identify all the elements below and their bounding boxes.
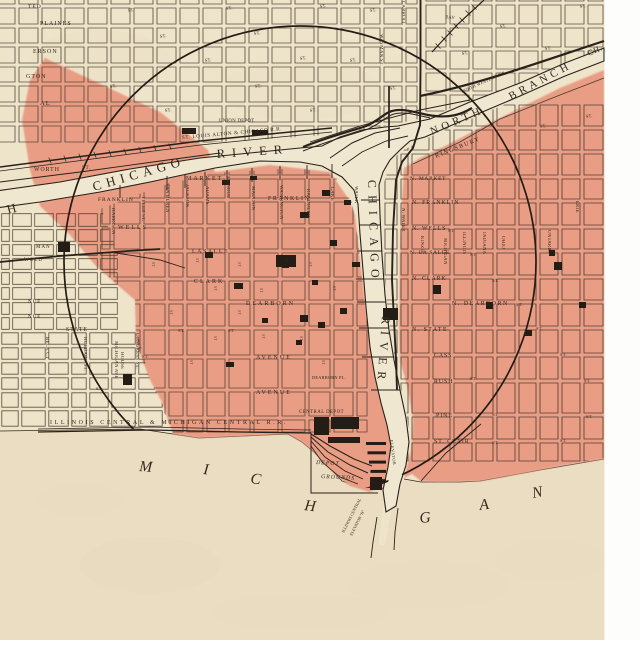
svg-text:JACKSON: JACKSON <box>184 184 189 208</box>
svg-text:ILLINOIS CENTRAL & MICHIGAN CE: ILLINOIS CENTRAL & MICHIGAN CENTRAL R.R. <box>50 420 288 426</box>
svg-text:ST.: ST. <box>389 85 396 91</box>
svg-text:UNION DEPOT.: UNION DEPOT. <box>219 119 256 124</box>
svg-text:ST: ST <box>321 360 325 365</box>
svg-text:WORTH: WORTH <box>34 167 60 173</box>
svg-text:ST.: ST. <box>228 328 235 333</box>
svg-text:ST.: ST. <box>536 326 543 331</box>
svg-text:ST.: ST. <box>585 113 592 119</box>
svg-text:ST: ST <box>213 336 217 341</box>
svg-text:N. STATE: N. STATE <box>412 327 448 333</box>
svg-text:ST.: ST. <box>253 30 260 36</box>
svg-text:WELLS: WELLS <box>118 225 148 231</box>
svg-text:ST: ST <box>151 262 155 267</box>
svg-text:ST.: ST. <box>349 57 356 63</box>
svg-text:N. FRANKLIN: N. FRANKLIN <box>412 200 459 206</box>
svg-text:ONTARIO: ONTARIO <box>546 230 551 253</box>
svg-text:N. CLARK: N. CLARK <box>412 276 447 282</box>
svg-text:KINZIE: KINZIE <box>419 236 424 254</box>
svg-text:N. WATER: N. WATER <box>400 208 405 232</box>
svg-text:MICHIGAN AVE: MICHIGAN AVE <box>113 341 118 379</box>
svg-text:MONROE: MONROE <box>225 176 230 198</box>
svg-text:LASALLE: LASALLE <box>192 249 229 255</box>
svg-text:CARROLL: CARROLL <box>400 1 405 25</box>
svg-text:ST: ST <box>332 286 336 291</box>
svg-text:INDIANA: INDIANA <box>481 232 486 255</box>
svg-text:ST.: ST. <box>319 3 326 9</box>
svg-text:HUBBARD ST.: HUBBARD ST. <box>82 337 87 371</box>
svg-text:ERIE: ERIE <box>574 201 579 213</box>
svg-text:CENTRAL DEPOT: CENTRAL DEPOT <box>299 410 344 415</box>
svg-text:MICHIGAN: MICHIGAN <box>442 238 447 265</box>
svg-text:ST.: ST. <box>309 107 316 113</box>
svg-text:ST.: ST. <box>560 352 567 357</box>
svg-text:CONGRESS ST.: CONGRESS ST. <box>134 333 139 369</box>
svg-text:ST: ST <box>299 336 303 341</box>
svg-text:WASHINGTON: WASHINGTON <box>278 185 283 220</box>
svg-text:WOLD: WOLD <box>24 258 43 263</box>
svg-text:ST: ST <box>169 310 173 315</box>
svg-text:ST.: ST. <box>96 386 103 391</box>
svg-text:ST: ST <box>237 310 241 315</box>
svg-text:ST.: ST. <box>225 5 232 11</box>
svg-text:ST. CLAIR: ST. CLAIR <box>434 439 470 445</box>
svg-text:ST.: ST. <box>560 438 567 443</box>
svg-text:WATER: WATER <box>353 186 358 204</box>
svg-text:ST.: ST. <box>586 414 593 419</box>
svg-text:G: G <box>419 509 432 527</box>
svg-text:AVE: AVE <box>444 14 455 20</box>
svg-text:FRANKLIN: FRANKLIN <box>268 196 310 202</box>
svg-text:CASS: CASS <box>434 353 453 359</box>
svg-text:AVENUE: AVENUE <box>256 390 292 396</box>
svg-text:ST.: ST. <box>299 55 306 61</box>
svg-text:ST.: ST. <box>82 166 91 171</box>
svg-text:ST.: ST. <box>516 302 523 307</box>
svg-text:ST.: ST. <box>178 328 185 333</box>
svg-text:ST.: ST. <box>579 3 586 9</box>
svg-text:MAN: MAN <box>36 245 51 250</box>
svg-text:PLAINES: PLAINES <box>40 21 72 27</box>
svg-text:FRANKLIN: FRANKLIN <box>98 197 134 203</box>
svg-text:AL: AL <box>40 100 51 107</box>
svg-text:MARKET: MARKET <box>186 176 223 182</box>
svg-text:NUE: NUE <box>28 300 41 305</box>
svg-text:OHIO: OHIO <box>500 236 505 249</box>
svg-text:PINE: PINE <box>436 413 453 419</box>
svg-text:N. MARKET: N. MARKET <box>410 176 446 182</box>
svg-text:DEARBORN PL.: DEARBORN PL. <box>312 375 346 380</box>
svg-text:ST.: ST. <box>159 33 166 39</box>
svg-text:ST: ST <box>237 262 241 267</box>
svg-text:TED: TED <box>28 4 42 10</box>
svg-text:ST.: ST. <box>492 278 499 283</box>
svg-text:ST.: ST. <box>492 440 499 445</box>
svg-text:N. WELLS: N. WELLS <box>412 226 446 232</box>
svg-text:N. DEARBORN: N. DEARBORN <box>452 301 509 307</box>
svg-text:ST.: ST. <box>109 83 116 89</box>
svg-text:ST.: ST. <box>539 123 546 129</box>
svg-text:ST.: ST. <box>204 57 211 63</box>
svg-text:CLARK: CLARK <box>194 279 224 285</box>
svg-text:ST: ST <box>189 360 193 365</box>
svg-text:ST: ST <box>259 288 263 293</box>
svg-text:ST.: ST. <box>470 252 477 257</box>
svg-text:ST.: ST. <box>127 7 134 13</box>
svg-text:AVENUE: AVENUE <box>256 355 292 361</box>
svg-text:ST.: ST. <box>448 228 455 233</box>
svg-text:LAKE: LAKE <box>329 187 334 201</box>
svg-text:BECK CT: BECK CT <box>44 337 49 359</box>
svg-text:ST.: ST. <box>499 23 506 29</box>
svg-text:WAYMAN ST.: WAYMAN ST. <box>378 34 383 66</box>
svg-text:ERSON: ERSON <box>33 49 58 55</box>
svg-text:ST.: ST. <box>254 83 261 89</box>
svg-text:RUSH: RUSH <box>434 379 453 385</box>
svg-text:ST.: ST. <box>544 45 551 51</box>
svg-text:TYLER ST.: TYLER ST. <box>140 196 145 221</box>
svg-text:ST: ST <box>195 258 199 263</box>
svg-text:ST: ST <box>284 258 288 263</box>
svg-text:HARRISON: HARRISON <box>110 208 115 235</box>
svg-text:ST.: ST. <box>461 50 468 56</box>
svg-text:ST.: ST. <box>369 7 376 13</box>
svg-text:ADAMS: ADAMS <box>204 186 209 205</box>
svg-text:VAN BUREN: VAN BUREN <box>164 183 169 213</box>
svg-text:ST.: ST. <box>164 107 171 113</box>
svg-text:ST.: ST. <box>584 378 591 383</box>
svg-text:RANDOLPH: RANDOLPH <box>305 189 310 217</box>
svg-text:ST.: ST. <box>470 376 477 381</box>
svg-text:ST: ST <box>261 334 265 339</box>
svg-text:ILLINOIS: ILLINOIS <box>461 232 466 254</box>
svg-text:MADISON: MADISON <box>250 186 255 210</box>
svg-text:NUE: NUE <box>28 315 41 320</box>
svg-text:ST: ST <box>308 262 312 267</box>
svg-text:M: M <box>138 458 154 476</box>
svg-text:HOUSE: HOUSE <box>119 352 124 369</box>
svg-text:GTON: GTON <box>26 74 47 80</box>
svg-text:DEARBORN: DEARBORN <box>246 301 295 307</box>
svg-text:STATE: STATE <box>66 327 88 333</box>
svg-text:ST.: ST. <box>492 412 499 417</box>
svg-text:ST.: ST. <box>142 354 149 359</box>
svg-text:ST: ST <box>213 286 217 291</box>
